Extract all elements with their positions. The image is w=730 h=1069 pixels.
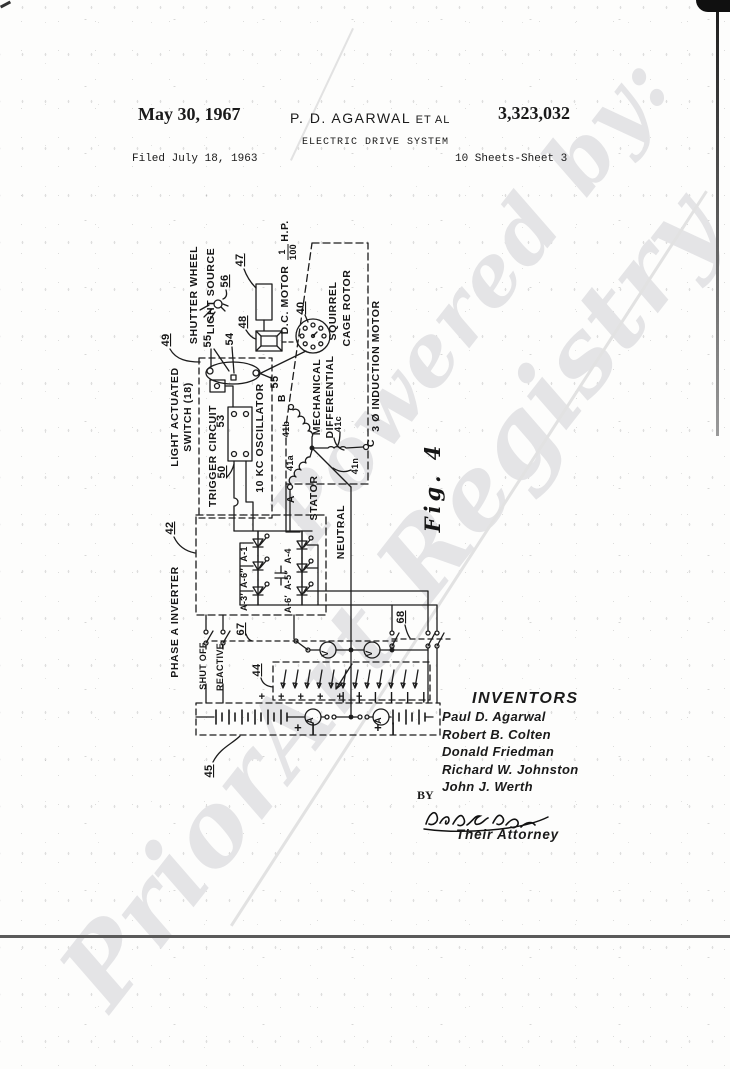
shaft-link-line bbox=[259, 351, 306, 374]
label-shut-off: SHUT OFF bbox=[198, 642, 208, 690]
label-scr-a6p: A-6′ bbox=[283, 595, 293, 613]
scan-corner-mark bbox=[696, 0, 730, 12]
ref-56: 56 bbox=[219, 274, 231, 287]
ref42-leader bbox=[174, 537, 195, 553]
ref-45: 45 bbox=[203, 764, 215, 777]
ref-67: 67 bbox=[235, 622, 247, 635]
ref47-leader bbox=[244, 269, 256, 288]
label-oscillator: 10 KC OSCILLATOR bbox=[254, 383, 266, 493]
label-terminal-b: B bbox=[276, 394, 288, 402]
polarity-mark-1: + | bbox=[294, 720, 318, 735]
ref-40: 40 bbox=[295, 301, 307, 314]
label-dc-motor: D.C. MOTOR bbox=[279, 266, 291, 335]
ref-54: 54 bbox=[224, 332, 236, 346]
ref-44: 44 bbox=[251, 663, 263, 677]
scan-edge-right bbox=[716, 6, 719, 436]
ref-49: 49 bbox=[160, 333, 172, 346]
label-phase-a-inverter: PHASE A INVERTER bbox=[169, 566, 181, 678]
coil-41b bbox=[293, 409, 313, 446]
voltmeter-1-letter: V bbox=[320, 650, 330, 656]
label-scr-a3p: A-3′ bbox=[239, 593, 249, 611]
label-switch-18: SWITCH (18) bbox=[182, 382, 194, 452]
inventor-name: Richard W. Johnston bbox=[442, 761, 579, 779]
inventor-name: John J. Werth bbox=[442, 778, 579, 796]
ref-48: 48 bbox=[237, 315, 249, 328]
attorney-label: Their Attorney bbox=[456, 827, 559, 842]
scan-edge-bottom bbox=[0, 935, 730, 938]
label-scr-a6pp: A-6″ bbox=[239, 568, 249, 588]
ref45-leader bbox=[213, 736, 240, 762]
label-hp-unit: H.P. bbox=[279, 220, 291, 241]
inventor-name: Paul D. Agarwal bbox=[442, 708, 579, 726]
label-coil-41n: 41n bbox=[350, 458, 360, 474]
label-shutter-wheel: SHUTTER WHEEL bbox=[188, 246, 200, 344]
ref44-leader bbox=[261, 678, 273, 687]
label-coil-41b: 41b bbox=[281, 421, 291, 438]
ref48-leader bbox=[246, 330, 256, 339]
dc-motor-box bbox=[256, 284, 272, 320]
label-scr-a5pp: A-5″ bbox=[283, 570, 293, 590]
label-scr-a4: A-4 bbox=[283, 548, 293, 563]
tap-bar-row: | | | | | | bbox=[342, 691, 431, 703]
label-light-source: LIGHT SOURCE bbox=[205, 248, 217, 335]
inventors-heading: INVENTORS bbox=[472, 690, 579, 708]
label-light-actuated: LIGHT ACTUATED bbox=[169, 367, 181, 466]
label-terminal-a: A bbox=[285, 495, 297, 503]
ref55-54-leaders bbox=[211, 347, 234, 373]
figure-label: Fig. 4 bbox=[420, 442, 445, 534]
ref49-leader bbox=[170, 349, 200, 362]
inventor-name: Robert B. Colten bbox=[442, 726, 579, 744]
battery-cells-left bbox=[216, 710, 287, 724]
ref56-leader bbox=[223, 290, 227, 299]
control-arrows bbox=[281, 664, 418, 689]
ref-47: 47 bbox=[234, 253, 246, 266]
label-squirrel: SQUIRREL bbox=[327, 281, 339, 340]
ref-55b: 55 bbox=[269, 375, 281, 388]
label-reactive: REACTIVE bbox=[215, 643, 225, 691]
figure-4-schematic: SHUTTER WHEEL LIGHT SOURCE 56 47 48 D.C.… bbox=[0, 0, 730, 942]
voltmeter-2-letter: V bbox=[364, 650, 374, 656]
ref-55a: 55 bbox=[202, 334, 214, 347]
ref68-leader bbox=[405, 625, 410, 638]
label-neutral: NEUTRAL bbox=[335, 505, 347, 559]
polarity-mark-2: + | bbox=[374, 720, 398, 735]
ref50-leader bbox=[227, 464, 234, 477]
scr-symbols bbox=[253, 531, 313, 605]
inventors-list: Paul D. Agarwal Robert B. Colten Donald … bbox=[442, 708, 579, 796]
ref-42: 42 bbox=[164, 521, 176, 534]
label-terminal-c: C bbox=[365, 439, 377, 447]
label-coil-41c: 41c bbox=[333, 416, 343, 432]
svg-text:1: 1 bbox=[277, 249, 287, 254]
label-coil-41a: 41a bbox=[285, 454, 295, 471]
inventor-name: Donald Friedman bbox=[442, 743, 579, 761]
label-hp-fraction: 1 100 bbox=[277, 244, 298, 260]
ref-50: 50 bbox=[216, 465, 228, 478]
label-induction-motor: 3 Ø INDUCTION MOTOR bbox=[370, 300, 382, 431]
label-stator: STATOR bbox=[308, 475, 320, 520]
label-scr-a1: A-1 bbox=[239, 546, 249, 561]
label-cage-rotor: CAGE ROTOR bbox=[341, 270, 353, 347]
ref41c-leader bbox=[338, 432, 340, 445]
svg-text:100: 100 bbox=[288, 244, 298, 260]
label-trigger-circuit: TRIGGER CIRCUIT bbox=[207, 405, 219, 507]
patent-scan-page: { "header": { "date": "May 30, 1967", "a… bbox=[0, 0, 730, 942]
ref-68: 68 bbox=[395, 610, 407, 623]
battery-box-45 bbox=[196, 703, 440, 735]
label-mechanical: MECHANICAL bbox=[311, 359, 323, 436]
